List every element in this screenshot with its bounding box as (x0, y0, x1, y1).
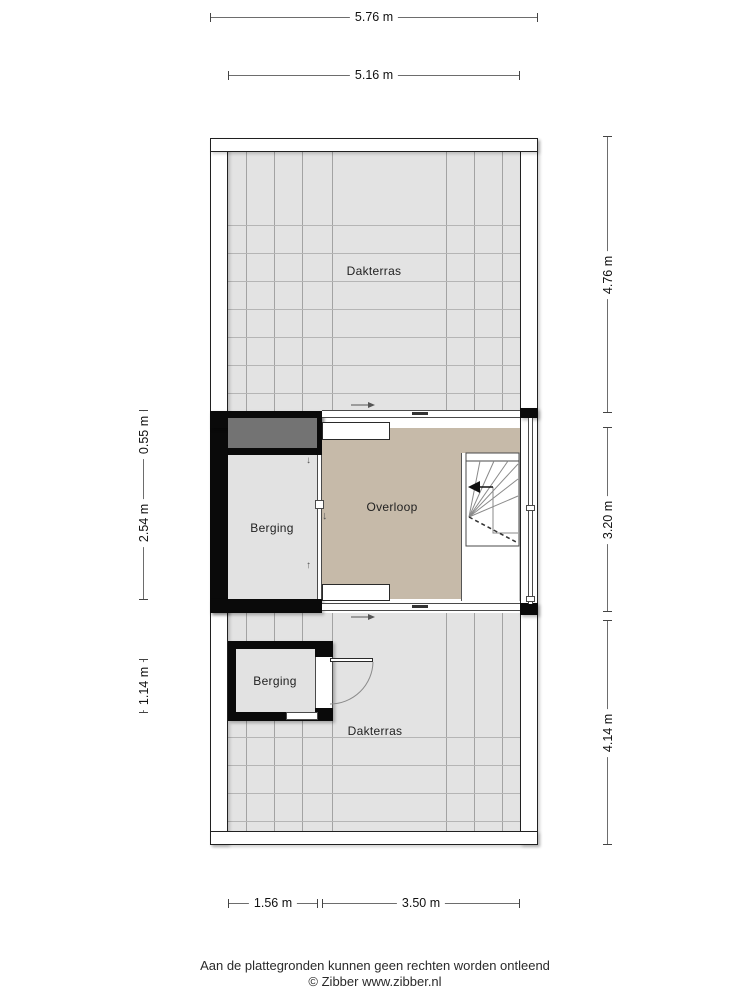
wall-bottom (210, 831, 538, 845)
dimension-tick (228, 71, 229, 80)
dimension-label-left-middle: 2.54 m (137, 499, 151, 547)
dimension-bottom-right: 3.50 m (322, 898, 520, 908)
room-label-dakterras-bottom: Dakterras (348, 724, 403, 738)
tile-grid-line (446, 613, 447, 831)
tile-grid-line (228, 393, 520, 394)
dimension-top-inner: 5.16 m (228, 70, 520, 80)
dimension-label-left-top: 0.55 m (137, 411, 151, 459)
dimension-tick (603, 611, 612, 612)
dimension-tick (603, 136, 612, 137)
window-tick (526, 505, 535, 511)
dimension-tick (317, 899, 318, 908)
up-arrow-icon: ↑ (306, 560, 311, 571)
wall-berging-overloop (317, 455, 322, 599)
stairs (461, 450, 521, 550)
dimension-label-bottom-left: 1.56 m (249, 896, 297, 910)
dimension-label-top-outer: 5.76 m (350, 10, 398, 24)
dimension-tick (603, 620, 612, 621)
dimension-left-group: 0.55 m 2.54 m (139, 410, 148, 600)
dimension-label-right-middle: 3.20 m (601, 495, 615, 543)
wall-black-corner-bottomright (520, 603, 538, 615)
dimension-tick (603, 844, 612, 845)
wall-black-bottom-band (210, 599, 322, 613)
room-label-dakterras-top: Dakterras (347, 264, 402, 278)
wall-black-corner-topright (520, 408, 538, 418)
wall-jamb (315, 500, 324, 509)
tile-grid-line (228, 765, 520, 766)
door-swing-arc (325, 655, 380, 710)
door-leaf-top (322, 422, 390, 440)
dimension-label-right-top: 4.76 m (601, 250, 615, 298)
dimension-right-middle: 3.20 m (603, 427, 612, 612)
berging-window (286, 712, 318, 720)
room-label-berging-bottom: Berging (253, 674, 296, 688)
tile-grid-line (228, 309, 520, 310)
tile-grid-line (228, 365, 520, 366)
dimension-bottom-left: 1.56 m (228, 898, 318, 908)
tile-grid-line (474, 613, 475, 831)
dimension-tick (139, 659, 148, 660)
dimension-tick (322, 899, 323, 908)
tile-grid-line (228, 225, 520, 226)
dimension-right-bottom: 4.14 m (603, 620, 612, 845)
room-label-berging-mid: Berging (250, 521, 293, 535)
wall-black-left (210, 411, 228, 613)
floorplan-canvas: 5.76 m 5.16 m 4.76 m 3.20 m 4.14 m 0.55 … (0, 0, 750, 1000)
tile-grid-line (228, 281, 520, 282)
dimension-tick (537, 13, 538, 22)
dimension-tick (228, 899, 229, 908)
tile-grid-line (228, 253, 520, 254)
dimension-tick (603, 427, 612, 428)
dimension-tick (603, 412, 612, 413)
footer-credit: © Zibber www.zibber.nl (0, 974, 750, 989)
dimension-label-left-bottom: 1.14 m (137, 662, 151, 710)
room-label-overloop: Overloop (366, 500, 417, 514)
dimension-top-outer: 5.76 m (210, 12, 538, 22)
tile-grid-line (228, 337, 520, 338)
sliding-door-bottom-handle (412, 605, 428, 608)
sliding-door-top-handle (412, 412, 428, 415)
door-leaf-bottom (322, 584, 390, 601)
flat-roof-strip (228, 418, 317, 448)
dimension-tick (139, 712, 148, 713)
dimension-tick (210, 13, 211, 22)
dimension-label-right-bottom: 4.14 m (601, 708, 615, 756)
wall-top (210, 138, 538, 152)
window-wall-right (528, 418, 533, 604)
down-arrow-icon: ↓ (306, 455, 311, 466)
right-arrow-icon (351, 613, 375, 621)
dimension-label-top-inner: 5.16 m (350, 68, 398, 82)
dimension-tick (139, 599, 148, 600)
tile-grid-line (228, 793, 520, 794)
dimension-tick (519, 71, 520, 80)
down-arrow-icon: ↓ (322, 510, 328, 522)
tile-grid-line (502, 613, 503, 831)
dimension-left-bottom: 1.14 m (139, 659, 148, 713)
window-tick (526, 596, 535, 602)
wall-black-under-roof (228, 448, 322, 455)
dimension-tick (519, 899, 520, 908)
dimension-right-top: 4.76 m (603, 136, 612, 413)
footer-disclaimer: Aan de plattegronden kunnen geen rechten… (0, 958, 750, 973)
right-arrow-icon (351, 401, 375, 409)
tile-grid-line (228, 821, 520, 822)
dimension-label-bottom-right: 3.50 m (397, 896, 445, 910)
